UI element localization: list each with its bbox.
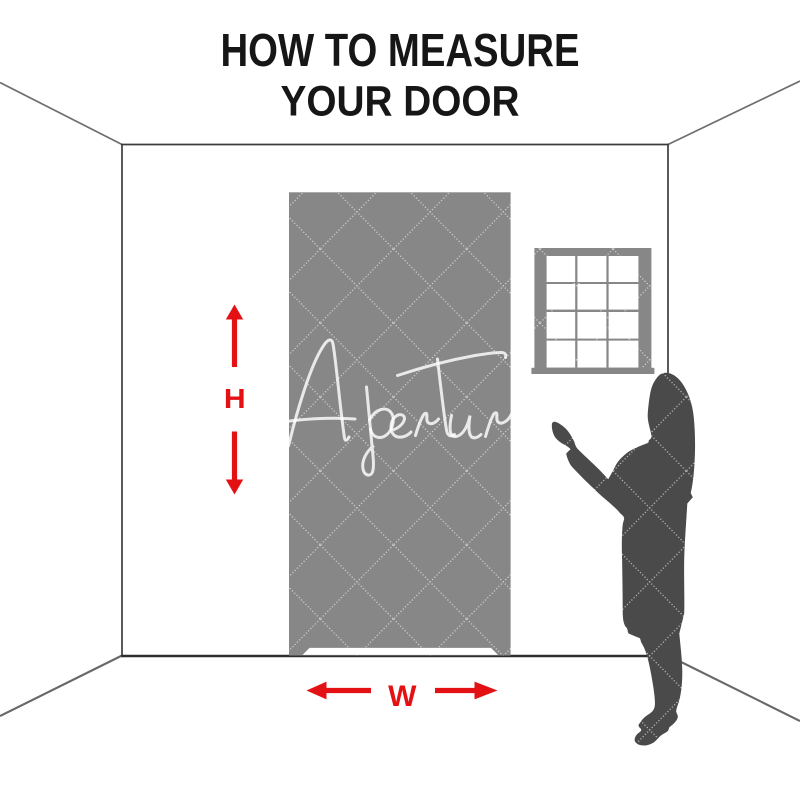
svg-text:YOUR DOOR: YOUR DOOR <box>281 77 520 125</box>
svg-text:HOW TO MEASURE: HOW TO MEASURE <box>221 24 580 76</box>
svg-text:W: W <box>388 680 417 713</box>
svg-text:H: H <box>224 384 246 415</box>
